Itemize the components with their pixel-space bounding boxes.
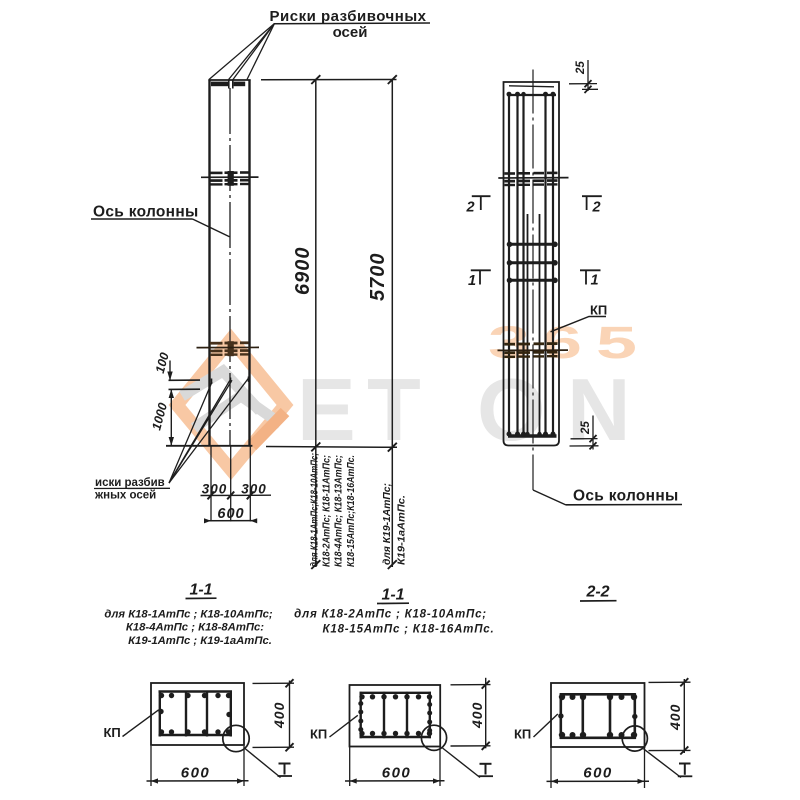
svg-text:25: 25 [580, 421, 592, 435]
svg-text:N: N [567, 360, 631, 459]
svg-text:К18-4АтПс; К18-13АтПс;: К18-4АтПс; К18-13АтПс; [334, 455, 345, 567]
svg-text:К18-2АтПс; К18-11АтПс;: К18-2АтПс; К18-11АтПс; [322, 455, 333, 567]
svg-text:T: T [367, 360, 421, 459]
svg-text:600: 600 [583, 765, 613, 782]
svg-text:E: E [297, 360, 356, 459]
svg-text:O: O [477, 360, 545, 459]
svg-text:300: 300 [202, 482, 228, 497]
svg-text:1-1: 1-1 [381, 587, 404, 604]
svg-text:1: 1 [468, 273, 476, 289]
svg-text:Ось колонны: Ось колонны [93, 204, 199, 221]
svg-text:2-2: 2-2 [585, 584, 609, 601]
svg-text:1: 1 [591, 273, 599, 289]
svg-text:КП: КП [310, 727, 327, 742]
svg-text:600: 600 [181, 765, 211, 782]
svg-text:для К18-2АтПс ; К18-10АтПс;: для К18-2АтПс ; К18-10АтПс; [294, 609, 487, 621]
svg-text:Ось колонны: Ось колонны [573, 488, 679, 505]
svg-text:К19-1аАтПс.: К19-1аАтПс. [397, 495, 408, 565]
svg-text:1000: 1000 [149, 401, 170, 432]
svg-text:400: 400 [271, 702, 287, 729]
svg-text:КП: КП [104, 725, 121, 740]
svg-text:жных осей: жных осей [94, 490, 156, 502]
svg-text:5700: 5700 [367, 253, 389, 302]
svg-text:К19-1АтПс ; К19-1аАтПс.: К19-1АтПс ; К19-1аАтПс. [128, 635, 272, 647]
svg-text:К18-15АтПс ; К18-16АтПс.: К18-15АтПс ; К18-16АтПс. [323, 624, 495, 636]
svg-text:6900: 6900 [292, 247, 314, 296]
svg-text:1-1: 1-1 [189, 582, 212, 599]
svg-text:300: 300 [241, 482, 267, 497]
svg-text:400: 400 [667, 704, 683, 731]
svg-text:осей: осей [333, 24, 368, 41]
svg-text:2: 2 [592, 200, 601, 216]
svg-text:100: 100 [153, 351, 172, 375]
svg-text:иски разбив: иски разбив [95, 477, 165, 489]
svg-text:2: 2 [466, 200, 475, 216]
svg-text:К18-4АтПс ; К18-8АтПс:: К18-4АтПс ; К18-8АтПс: [126, 622, 264, 634]
svg-text:600: 600 [217, 506, 244, 522]
svg-text:25: 25 [575, 61, 587, 75]
svg-text:КП: КП [514, 727, 531, 742]
svg-text:КП: КП [590, 303, 607, 318]
svg-text:для К19-1АтПс;: для К19-1АтПс; [382, 483, 393, 565]
svg-text:для К18-1АтПс ; К18-10АтПс;: для К18-1АтПс ; К18-10АтПс; [104, 609, 272, 621]
svg-text:600: 600 [382, 765, 412, 782]
svg-text:400: 400 [469, 702, 485, 729]
svg-text:К18-15АтПс;К18-16АтПс.: К18-15АтПс;К18-16АтПс. [346, 455, 357, 567]
svg-text:для К18-1АтПс;К18-10АтПс;: для К18-1АтПс;К18-10АтПс; [310, 453, 321, 567]
